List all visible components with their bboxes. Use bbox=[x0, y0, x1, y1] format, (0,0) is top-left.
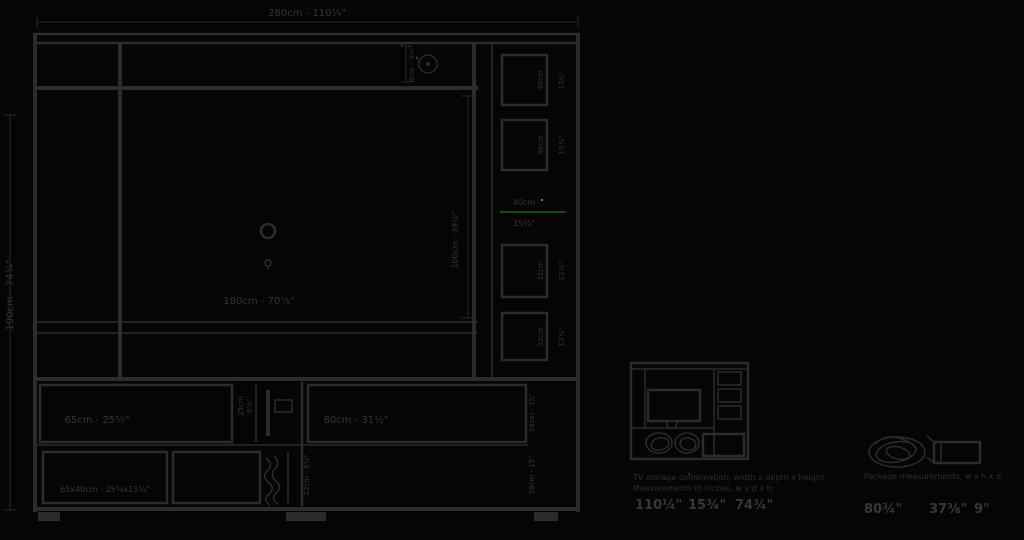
pile-icon bbox=[869, 437, 925, 467]
package-thumbnail-icon: Package measurements, w x h x d: 80¾" 37… bbox=[864, 436, 1004, 517]
green-dot bbox=[541, 199, 543, 201]
package-icon bbox=[927, 436, 980, 463]
tv-icon bbox=[648, 390, 700, 428]
diagram-canvas: 280cm - 110¼" 190cm - 74¾" 180cm - 70⅞" bbox=[0, 0, 1024, 540]
cubby4-cm-label: 32cm bbox=[537, 327, 545, 347]
noise-dot bbox=[688, 473, 690, 475]
base-mid-row2-label: 22cm - 8⅝" bbox=[303, 454, 311, 495]
thumb1-dim-2: 15¾" bbox=[688, 498, 726, 513]
gap-in-label: 15¾" bbox=[513, 219, 535, 228]
foot-right bbox=[534, 512, 558, 521]
keyhole-icon bbox=[265, 260, 271, 270]
noise-dot bbox=[416, 57, 418, 59]
door-front-mid bbox=[173, 452, 260, 503]
hinge-scribble bbox=[265, 452, 289, 505]
drawer-scribble-icon bbox=[646, 433, 699, 453]
thumb1-caption-line2: Measurements in inches, w x d x h: bbox=[633, 484, 774, 493]
dimension-top-width: 280cm - 110¼" bbox=[37, 7, 578, 28]
cubby-column: 40cm 15¾" 40cm 15¾" 32cm 12⅝" 32cm 12⅝" … bbox=[500, 55, 566, 360]
drawer-front-right bbox=[308, 385, 526, 442]
left-height-label: 190cm - 74¾" bbox=[5, 259, 16, 330]
cubby1-cm-label: 40cm bbox=[537, 70, 545, 90]
cubby2-in-label: 15¾" bbox=[558, 136, 566, 155]
cabinet-outline bbox=[33, 33, 580, 512]
door-front-left bbox=[43, 452, 167, 503]
opening-width-label: 180cm - 70⅞" bbox=[223, 296, 294, 307]
foot-middle bbox=[286, 512, 326, 521]
thumb2-dim-2: 37⅜" bbox=[929, 502, 967, 517]
dimension-diagram: 280cm - 110¼" 190cm - 74¾" 180cm - 70⅞" bbox=[0, 0, 1024, 540]
base-mid-cm-label: 25cm bbox=[237, 396, 245, 416]
knob-icon bbox=[261, 224, 275, 238]
cubby2-cm-label: 40cm bbox=[537, 135, 545, 155]
small-drawer bbox=[275, 400, 292, 412]
base-left-row2-label: 65x40cm - 25⅝x15¾" bbox=[60, 485, 150, 494]
thumb1-dim-3: 74¾" bbox=[735, 498, 773, 513]
top-right-detail-label: 8cm - 3⅛" bbox=[408, 46, 416, 83]
opening-height-label: 100cm - 39⅜" bbox=[451, 211, 460, 268]
unit-thumbnail-icon: TV storage combination, width x depth x … bbox=[631, 363, 824, 513]
foot-left bbox=[38, 512, 60, 521]
dimension-left-height: 190cm - 74¾" bbox=[3, 115, 17, 510]
base-mid-in-label: 9⅞" bbox=[246, 399, 254, 413]
tv-opening: 180cm - 70⅞" 100cm - 39⅜" bbox=[223, 96, 475, 318]
base-right-row1-label: 80cm - 31½" bbox=[324, 414, 389, 426]
thumb1-caption-line1: TV storage combination, width x depth x … bbox=[632, 473, 824, 482]
noise-dot bbox=[401, 44, 403, 46]
gap-cm-label: 40cm bbox=[513, 198, 536, 207]
base-right-dim-row2-label: 38cm - 15" bbox=[528, 456, 536, 495]
top-right-detail: 8cm - 3⅛" bbox=[401, 44, 437, 82]
cubby3-cm-label: 32cm bbox=[537, 261, 545, 281]
shelf-gap-highlight: 40cm 15¾" bbox=[500, 198, 566, 228]
thumb2-dim-3: 9" bbox=[974, 502, 990, 517]
thumb1-dim-1: 110¼" bbox=[635, 498, 682, 513]
drawer-front-left bbox=[40, 385, 232, 442]
cubby3-in-label: 12⅝" bbox=[558, 262, 566, 281]
thumb2-dim-1: 80¾" bbox=[864, 502, 902, 517]
cable-outlet-icon bbox=[419, 55, 437, 73]
thumb2-caption-line1: Package measurements, w x h x d: bbox=[864, 472, 1004, 481]
divider-bar bbox=[266, 390, 270, 436]
base-left-row1-label: 65cm - 25⅝" bbox=[65, 415, 130, 426]
cubby4-in-label: 12⅝" bbox=[558, 328, 566, 347]
base-section: 65cm - 25⅝" 25cm 9⅞" 80cm - 31½" 38cm - … bbox=[40, 382, 536, 506]
cubby1-in-label: 15¾" bbox=[558, 71, 566, 90]
top-width-label: 280cm - 110¼" bbox=[268, 7, 346, 19]
base-right-dim-row1-label: 38cm - 15" bbox=[528, 394, 536, 433]
